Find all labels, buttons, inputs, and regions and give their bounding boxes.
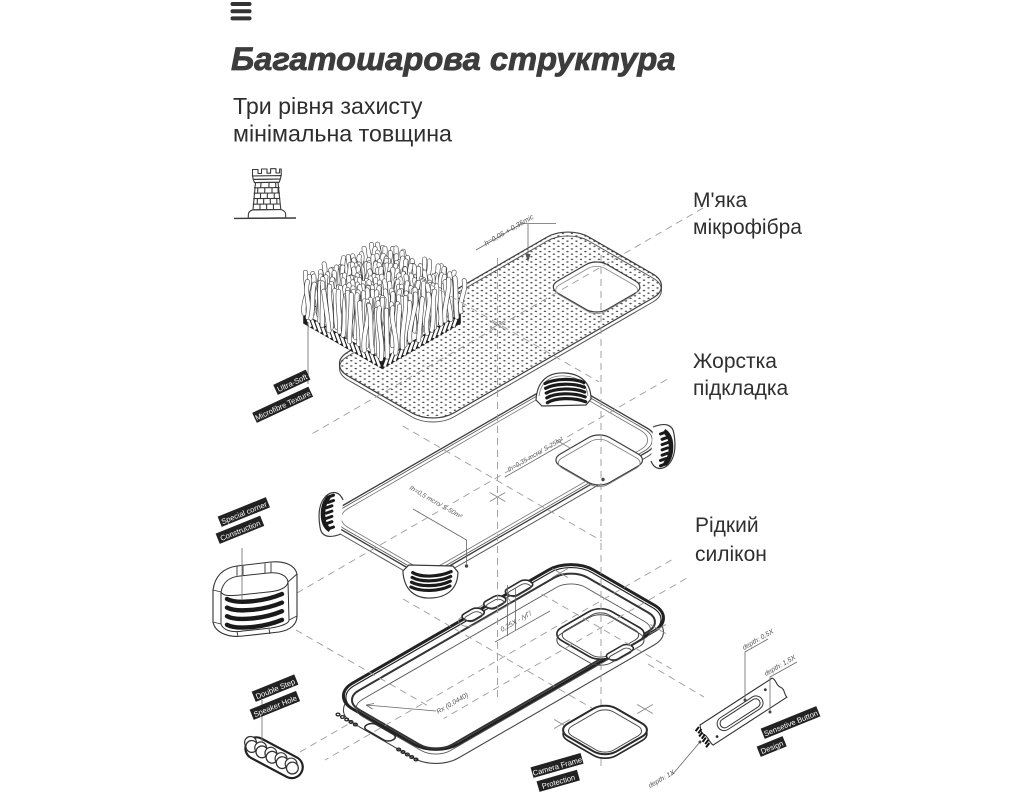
svg-text:мінімальна товщина: мінімальна товщина (233, 121, 452, 147)
svg-text:Багатошарова структура: Багатошарова структура (231, 40, 676, 77)
svg-text:Три рівня захисту: Три рівня захисту (233, 93, 423, 119)
